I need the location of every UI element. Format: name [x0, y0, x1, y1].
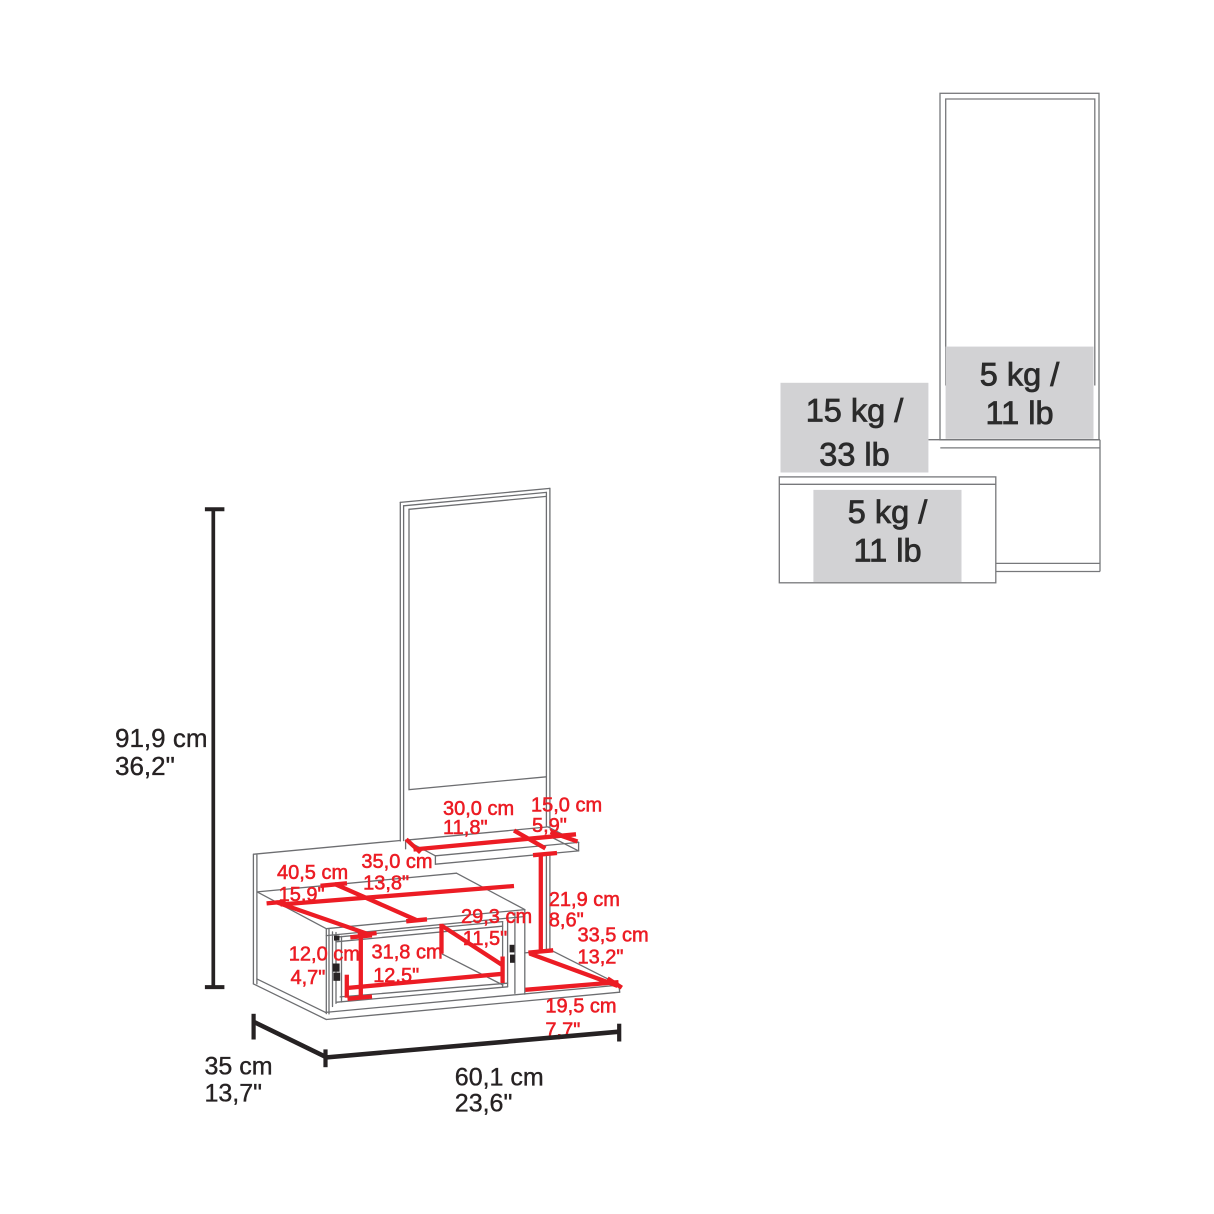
svg-text:29,3 cm: 29,3 cm	[461, 906, 532, 928]
svg-text:23,6": 23,6"	[455, 1089, 513, 1117]
svg-text:15,0 cm: 15,0 cm	[531, 795, 602, 817]
svg-text:4,7": 4,7"	[291, 967, 326, 989]
svg-text:11 lb: 11 lb	[853, 532, 921, 568]
svg-text:11,8": 11,8"	[443, 817, 488, 839]
svg-text:60,1 cm: 60,1 cm	[455, 1064, 544, 1092]
svg-text:13,7": 13,7"	[205, 1079, 263, 1107]
svg-text:13,2": 13,2"	[578, 947, 624, 969]
svg-text:21,9 cm: 21,9 cm	[549, 889, 620, 911]
svg-text:12,5": 12,5"	[373, 965, 419, 987]
svg-text:36,2": 36,2"	[115, 751, 175, 781]
svg-text:33,5 cm: 33,5 cm	[578, 925, 649, 947]
svg-text:5,9": 5,9"	[532, 815, 567, 837]
svg-text:35,0 cm: 35,0 cm	[361, 851, 432, 873]
svg-text:15,9": 15,9"	[279, 884, 325, 906]
svg-text:40,5 cm: 40,5 cm	[277, 862, 348, 884]
svg-text:31,8 cm: 31,8 cm	[372, 942, 443, 964]
svg-text:12,0 cm: 12,0 cm	[289, 943, 360, 965]
svg-text:91,9 cm: 91,9 cm	[115, 723, 208, 753]
svg-text:5 kg /: 5 kg /	[848, 494, 928, 530]
svg-text:11 lb: 11 lb	[985, 395, 1053, 431]
svg-text:15 kg /: 15 kg /	[806, 393, 905, 429]
svg-text:35 cm: 35 cm	[205, 1053, 273, 1081]
svg-text:11,5": 11,5"	[463, 928, 508, 950]
svg-text:19,5 cm: 19,5 cm	[545, 996, 616, 1018]
svg-text:13,8": 13,8"	[363, 872, 409, 894]
svg-text:33 lb: 33 lb	[819, 437, 889, 473]
svg-text:5 kg /: 5 kg /	[980, 357, 1060, 393]
